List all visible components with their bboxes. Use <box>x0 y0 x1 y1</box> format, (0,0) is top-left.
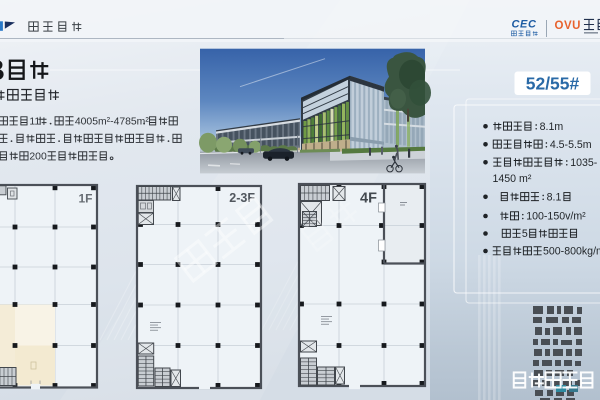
svg-text:52/55#: 52/55# <box>526 74 580 94</box>
svg-text:1450 m²: 1450 m² <box>493 173 532 185</box>
svg-text:OVU: OVU <box>555 20 581 32</box>
svg-text:4F: 4F <box>360 191 377 207</box>
svg-text:1F: 1F <box>78 192 92 206</box>
svg-text:200: 200 <box>29 152 47 163</box>
svg-text:1035-: 1035- <box>570 157 598 169</box>
svg-text:B: B <box>0 55 5 87</box>
svg-text:5: 5 <box>522 228 528 240</box>
svg-text:8.1m: 8.1m <box>540 121 564 133</box>
svg-text:4005m²-4785m²: 4005m²-4785m² <box>75 117 149 128</box>
svg-text:CEC: CEC <box>512 19 537 31</box>
svg-text:100-150v/m²: 100-150v/m² <box>526 211 586 223</box>
svg-text:500-800kg/m²: 500-800kg/m² <box>543 246 600 258</box>
svg-text:4.5-5.5m: 4.5-5.5m <box>550 139 592 151</box>
svg-text:8.1: 8.1 <box>547 191 562 203</box>
svg-text:11: 11 <box>29 117 40 128</box>
